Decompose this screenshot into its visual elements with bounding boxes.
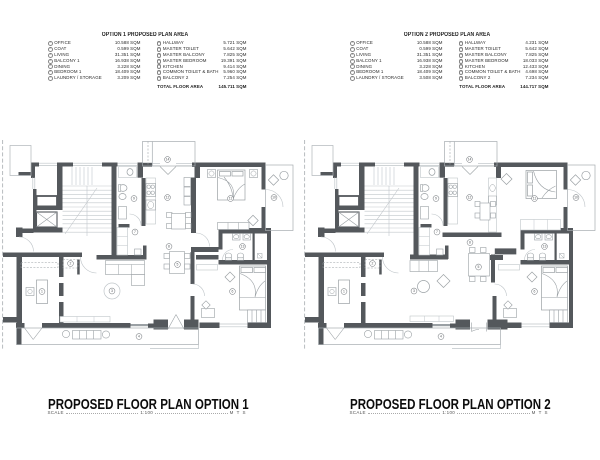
svg-text:6: 6: [232, 290, 234, 294]
svg-text:12: 12: [468, 196, 472, 200]
svg-text:10: 10: [574, 196, 578, 200]
svg-text:9: 9: [435, 197, 437, 201]
svg-text:3: 3: [413, 289, 415, 293]
svg-text:13: 13: [241, 245, 245, 249]
svg-text:2: 2: [70, 262, 72, 266]
svg-text:3: 3: [111, 289, 113, 293]
svg-text:10: 10: [272, 196, 276, 200]
svg-text:12: 12: [166, 196, 170, 200]
svg-text:2: 2: [372, 262, 374, 266]
svg-text:14: 14: [468, 158, 472, 162]
svg-text:8: 8: [469, 241, 471, 245]
svg-text:7: 7: [134, 230, 136, 234]
svg-text:1: 1: [41, 290, 43, 294]
svg-text:9: 9: [133, 197, 135, 201]
svg-text:14: 14: [166, 158, 170, 162]
svg-text:11: 11: [229, 197, 233, 201]
svg-text:11: 11: [533, 197, 537, 201]
svg-text:5: 5: [478, 265, 480, 269]
svg-text:1: 1: [343, 290, 345, 294]
svg-text:13: 13: [543, 245, 547, 249]
svg-text:6: 6: [534, 290, 536, 294]
svg-text:4: 4: [138, 335, 140, 339]
svg-text:4: 4: [440, 335, 442, 339]
svg-text:5: 5: [177, 263, 179, 267]
svg-text:7: 7: [436, 230, 438, 234]
svg-text:8: 8: [168, 245, 170, 249]
